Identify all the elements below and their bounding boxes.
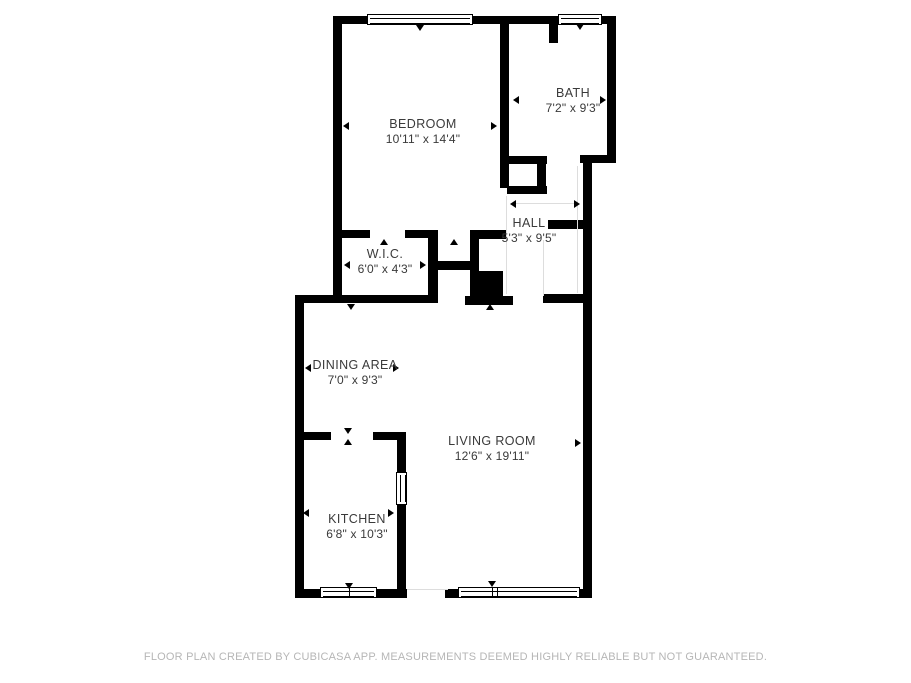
door-marker-icon — [450, 239, 458, 245]
room-dimensions: 5'3" x 9'5" — [502, 231, 557, 246]
wall-bath-tub-stub — [549, 24, 558, 43]
room-label-living: LIVING ROOM 12'6" x 19'11" — [448, 434, 536, 464]
window-mullion — [400, 475, 406, 502]
dimension-arrow-icon — [303, 509, 309, 517]
dimension-arrow-icon — [510, 200, 516, 208]
window-mullion — [561, 18, 599, 24]
window-marker-icon — [416, 25, 424, 31]
kitchen-pass-through-window — [396, 472, 407, 505]
living-room-window — [458, 587, 580, 598]
room-dimensions: 10'11" x 14'4" — [386, 132, 460, 147]
dimension-arrow-icon — [575, 439, 581, 447]
window-divider — [497, 588, 498, 597]
dimension-arrow-icon — [574, 200, 580, 208]
room-name: LIVING ROOM — [448, 434, 536, 449]
dimension-arrow-icon — [343, 122, 349, 130]
wall-bath-right-exterior — [607, 16, 616, 163]
room-label-hall: HALL 5'3" x 9'5" — [502, 216, 557, 246]
window-marker-icon — [488, 581, 496, 587]
room-label-kitchen: KITCHEN 6'8" x 10'3" — [326, 512, 388, 542]
room-name: HALL — [502, 216, 557, 231]
bottom-opening-line — [407, 589, 448, 590]
wall-bath-bottom-right — [580, 155, 616, 163]
floor-plan: BEDROOM 10'11" x 14'4" BATH 7'2" x 9'3" … — [0, 0, 911, 683]
door-marker-icon — [344, 439, 352, 445]
dimension-arrow-icon — [305, 364, 311, 372]
wall-bedroom-bottom-left — [333, 230, 370, 238]
dimension-arrow-icon — [513, 96, 519, 104]
wall-hall-closet-bottom — [507, 186, 547, 194]
room-dimensions: 6'8" x 10'3" — [326, 527, 388, 542]
room-dimensions: 7'2" x 9'3" — [546, 101, 601, 116]
wall-hall-bottom — [543, 294, 592, 303]
hall-dimension-line — [512, 203, 575, 204]
wall-bedroom-closet-bottom — [433, 261, 472, 270]
room-label-wic: W.I.C. 6'0" x 4'3" — [358, 247, 413, 277]
door-marker-icon — [380, 239, 388, 245]
dimension-arrow-icon — [388, 509, 394, 517]
wall-kitchen-right — [397, 432, 406, 597]
room-label-bath: BATH 7'2" x 9'3" — [546, 86, 601, 116]
window-marker-icon — [345, 583, 353, 589]
hall-boundary-line — [543, 240, 544, 296]
room-dimensions: 12'6" x 19'11" — [448, 449, 536, 464]
dimension-arrow-icon — [344, 261, 350, 269]
window-divider — [349, 588, 350, 597]
room-name: BATH — [546, 86, 601, 101]
dimension-arrow-icon — [491, 122, 497, 130]
room-dimensions: 6'0" x 4'3" — [358, 262, 413, 277]
footer-disclaimer: FLOOR PLAN CREATED BY CUBICASA APP. MEAS… — [144, 651, 767, 663]
dimension-arrow-icon — [420, 261, 426, 269]
room-name: BEDROOM — [386, 117, 460, 132]
room-name: W.I.C. — [358, 247, 413, 262]
door-marker-icon — [486, 304, 494, 310]
window-marker-icon — [576, 24, 584, 30]
wall-left-upper-exterior — [333, 16, 342, 303]
window-mullion — [370, 18, 470, 24]
wall-left-lower-exterior — [295, 295, 304, 597]
wall-kitchen-top-left — [295, 432, 331, 440]
room-label-bedroom: BEDROOM 10'11" x 14'4" — [386, 117, 460, 147]
window-mullion — [461, 591, 577, 597]
door-marker-icon — [347, 304, 355, 310]
dimension-arrow-icon — [600, 96, 606, 104]
room-label-dining: DINING AREA 7'0" x 9'3" — [313, 358, 398, 388]
hall-boundary-line — [577, 166, 578, 293]
room-name: KITCHEN — [326, 512, 388, 527]
bedroom-window — [367, 14, 473, 25]
entry-block — [475, 271, 503, 297]
room-name: DINING AREA — [313, 358, 398, 373]
room-dimensions: 7'0" x 9'3" — [313, 373, 398, 388]
wall-wic-bottom — [295, 295, 438, 303]
window-divider — [492, 588, 493, 597]
door-marker-icon — [344, 428, 352, 434]
